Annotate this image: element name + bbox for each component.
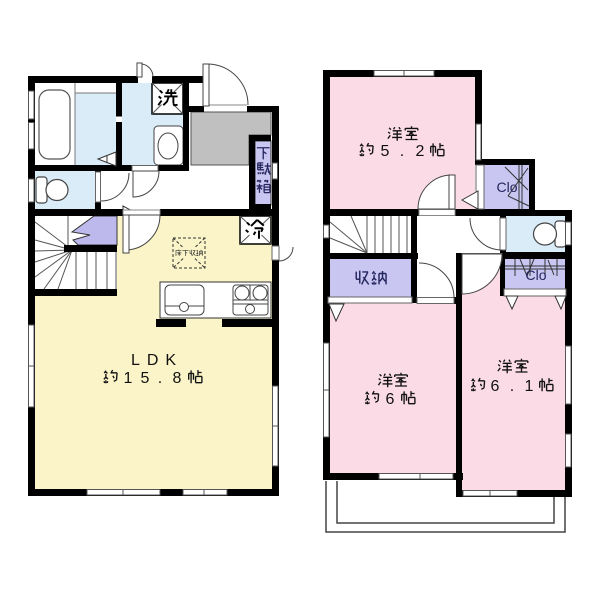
svg-text:6: 6 (491, 378, 500, 395)
svg-text:5: 5 (381, 143, 390, 160)
svg-text:6: 6 (386, 391, 395, 408)
svg-text:.: . (510, 378, 514, 395)
svg-text:.: . (158, 370, 162, 387)
svg-text:1: 1 (124, 370, 133, 387)
svg-text:Clo: Clo (525, 267, 546, 283)
svg-text:.: . (400, 143, 404, 160)
svg-text:Clo: Clo (496, 179, 517, 195)
svg-text:8: 8 (173, 370, 182, 387)
svg-text:LDK: LDK (131, 352, 183, 369)
svg-text:2: 2 (416, 143, 425, 160)
svg-text:1: 1 (525, 378, 534, 395)
svg-text:5: 5 (141, 370, 150, 387)
